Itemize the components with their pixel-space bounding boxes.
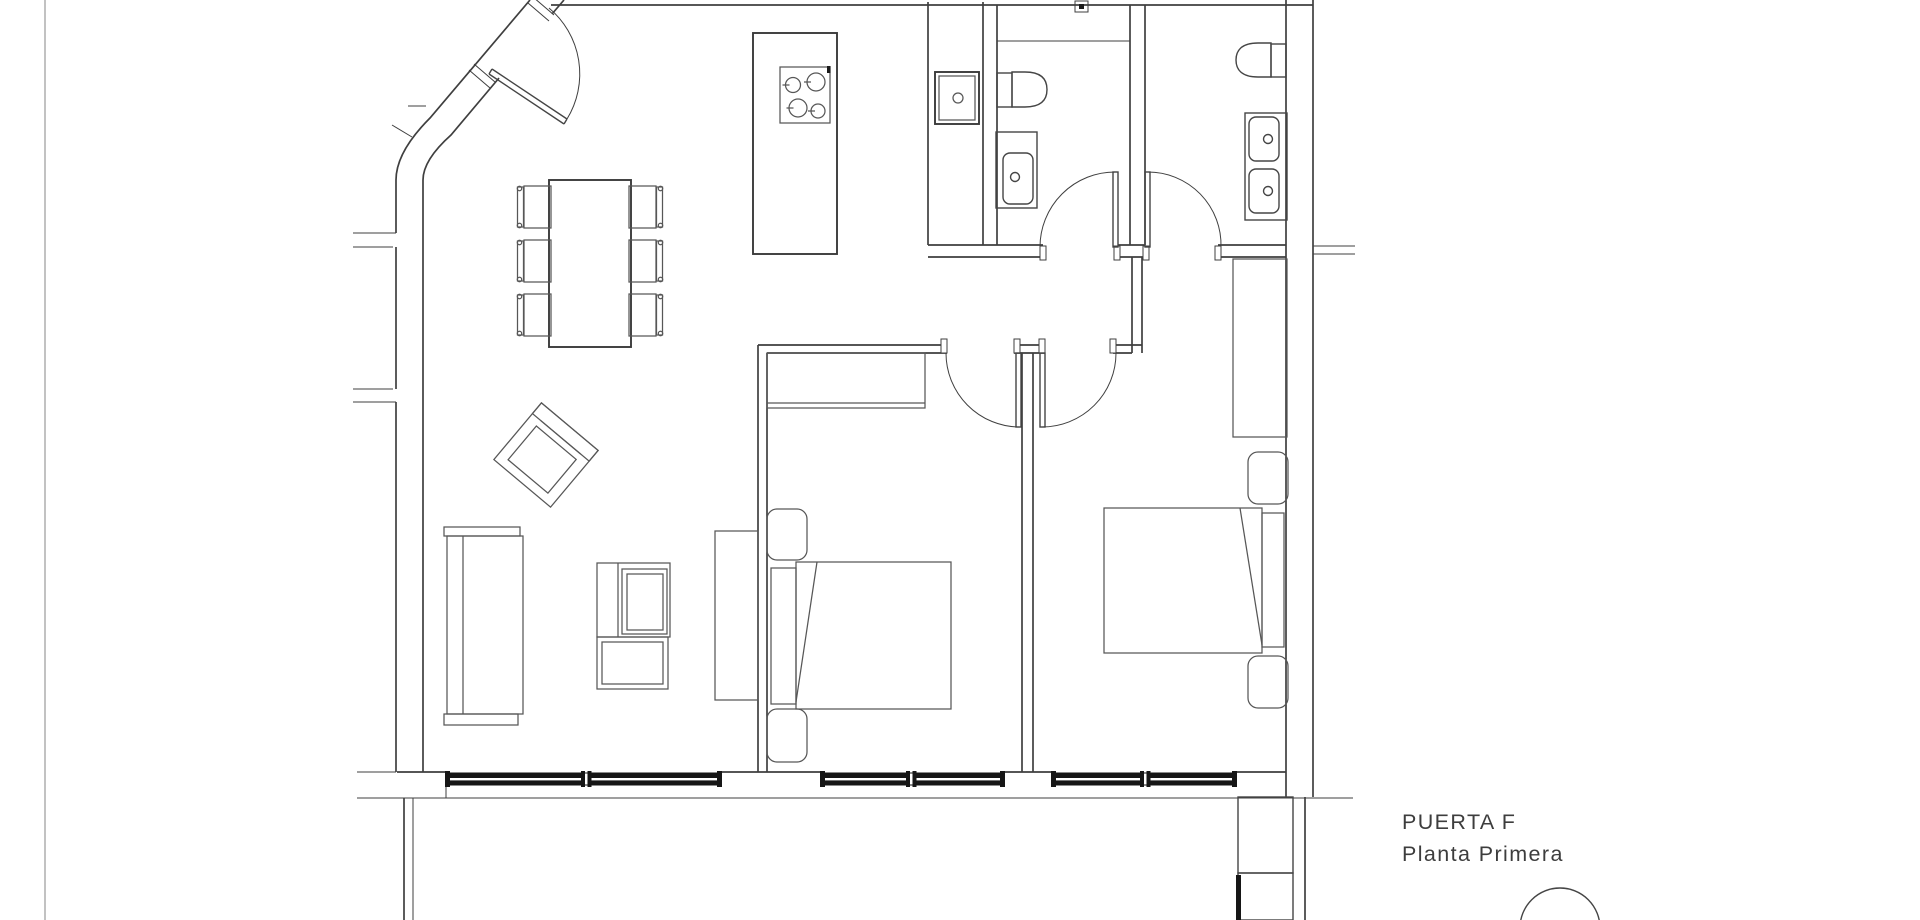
bedroom2-door [1040, 353, 1116, 427]
window-bedroom2 [1051, 771, 1237, 787]
plan-title-line2: Planta Primera [1402, 842, 1564, 866]
armchair [494, 403, 598, 507]
exterior-wall-left [353, 0, 564, 772]
dining-chair [517, 294, 551, 336]
bathroom2-toilet [1236, 43, 1286, 77]
dining-chair [629, 186, 663, 228]
inter-bathroom-wall [1130, 5, 1145, 245]
window-bedroom1 [820, 771, 1005, 787]
hall-wall [1132, 257, 1142, 353]
entrance-door [469, 0, 580, 124]
window-living [445, 771, 722, 787]
floor-plan-canvas: PUERTA F Planta Primera [0, 0, 1920, 920]
dining-chairs-right [629, 186, 663, 336]
bathroom2-vanity [1245, 113, 1287, 220]
bedroom2-nightstand-bottom [1248, 656, 1288, 708]
shower-drain-icon [1075, 1, 1088, 12]
corner-circle-symbol [1520, 888, 1600, 920]
dining-table [549, 180, 631, 347]
bedroom-divider-wall [1022, 353, 1033, 772]
bedroom2-wardrobe [1233, 259, 1287, 437]
bathroom1-toilet [997, 72, 1047, 107]
exterior-wall-right [1286, 0, 1355, 797]
bedroom1-nightstand-bottom [767, 709, 807, 762]
faucet-icon [1011, 173, 1020, 182]
floor-plan-drawing: PUERTA F Planta Primera [0, 0, 1920, 920]
bedroom2-nightstand-top [1248, 452, 1288, 504]
bedroom1-nightstand-top [767, 509, 807, 560]
plan-title-line1: PUERTA F [1402, 810, 1516, 834]
dining-chair [517, 240, 551, 282]
bathroom1-shower [997, 1, 1130, 41]
title-block: PUERTA F Planta Primera [1402, 810, 1564, 866]
bedroom1-door [946, 353, 1021, 427]
dining-chair [629, 294, 663, 336]
bathroom1-door [1040, 172, 1118, 247]
terrace [404, 797, 1305, 920]
faucet-icon [1264, 135, 1273, 144]
terrace-storage-lower [1238, 873, 1293, 920]
dining-chairs-left [517, 186, 551, 336]
dining-chair [517, 186, 551, 228]
terrace-storage-upper [1238, 797, 1293, 873]
bedroom-top-wall [758, 339, 1142, 353]
bathroom-bottom-wall [928, 245, 1286, 260]
dining-chair [629, 240, 663, 282]
kitchen-sink [935, 72, 979, 124]
sofa [444, 527, 523, 725]
bedroom1-bed [771, 562, 951, 709]
bedroom1-wardrobe [767, 353, 925, 408]
terrace-wall-section [1236, 875, 1241, 920]
tv-cabinet [597, 563, 670, 689]
bathroom2-door [1145, 172, 1221, 247]
living-bedroom1-wall [758, 345, 767, 772]
bathroom1-washbasin [996, 132, 1037, 208]
cooktop-icon [780, 66, 831, 123]
living-shelf [715, 531, 758, 700]
faucet-icon [1264, 187, 1273, 196]
faucet-icon [953, 93, 963, 103]
kitchen-island [753, 33, 837, 254]
bedroom2-bed [1104, 508, 1284, 653]
